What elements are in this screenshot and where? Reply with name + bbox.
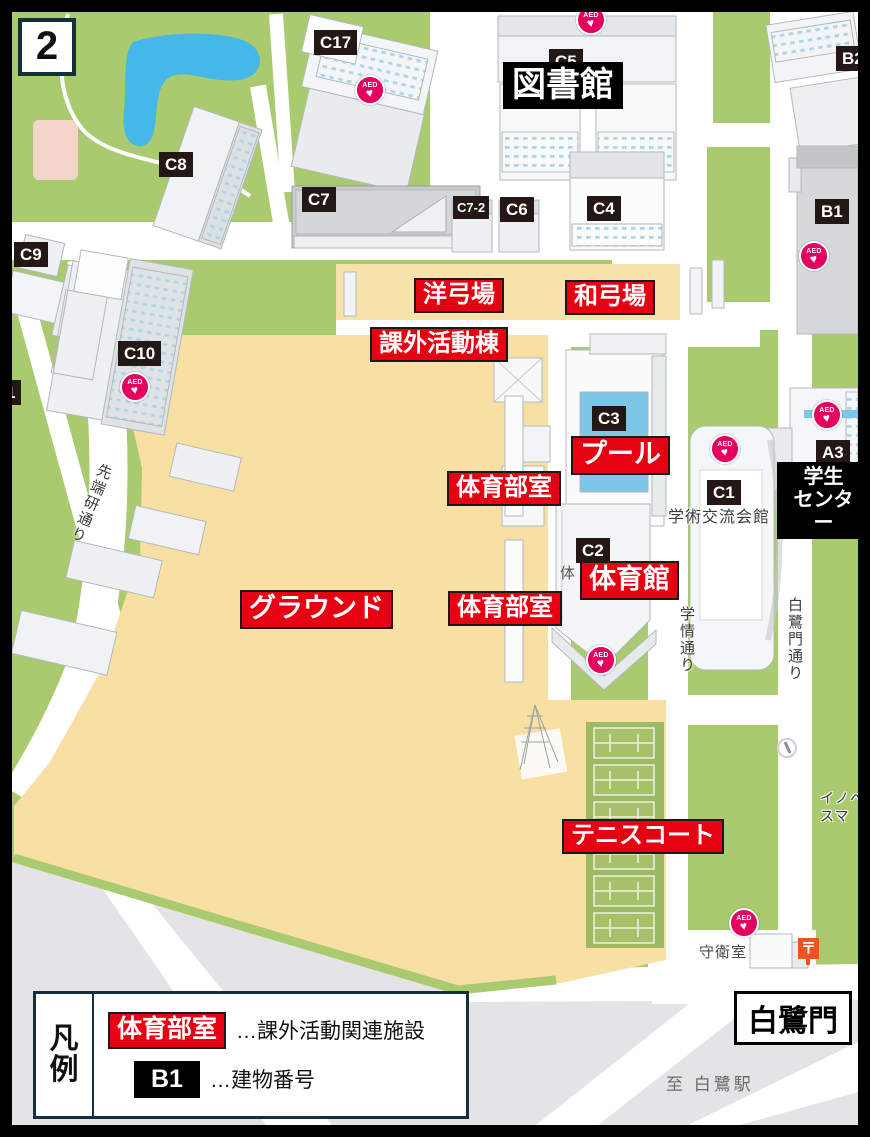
map-text: 守衛室 xyxy=(699,944,747,963)
facility-label: 体育部室 xyxy=(447,471,561,506)
building-number-c8: C8 xyxy=(159,152,193,177)
label-layer: C17C5B2C8C9C7C7-2C6C4B1C101C3C1C2A3洋弓場和弓… xyxy=(0,0,870,1137)
aed-icon: AED♥ xyxy=(812,400,842,430)
aed-icon: AED♥ xyxy=(710,434,740,464)
page-number-badge: 2 xyxy=(18,18,76,76)
building-number-b1: B1 xyxy=(815,199,849,224)
gate-label: 白鷺門 xyxy=(734,991,852,1045)
legend-red-sample: 体育部室 xyxy=(108,1012,226,1049)
building-number-c1: C1 xyxy=(707,480,741,505)
map-text: イノベ スマ xyxy=(820,790,865,825)
legend-row-number: B1 …建物番号 xyxy=(108,1061,466,1098)
building-number-b2: B2 xyxy=(836,46,870,71)
place-label: 図書館 xyxy=(503,62,623,109)
building-number-c4: C4 xyxy=(587,196,621,221)
aed-icon: AED♥ xyxy=(729,908,759,938)
legend: 凡例 体育部室 …課外活動関連施設 B1 …建物番号 xyxy=(33,991,469,1119)
facility-label: 和弓場 xyxy=(565,280,655,315)
road-name: 学情通り xyxy=(676,606,697,674)
building-number-c7-2: C7-2 xyxy=(453,196,489,219)
aed-icon: AED♥ xyxy=(576,5,606,35)
facility-label: 洋弓場 xyxy=(414,278,504,313)
building-number-c3: C3 xyxy=(592,406,626,431)
building-number-c9: C9 xyxy=(14,242,48,267)
building-number-c6: C6 xyxy=(500,197,534,222)
aed-icon: AED♥ xyxy=(799,241,829,271)
aed-icon: AED♥ xyxy=(120,372,150,402)
legend-row-facility: 体育部室 …課外活動関連施設 xyxy=(108,1012,466,1049)
facility-label: グラウンド xyxy=(240,590,393,629)
road-name: 白鷺門通り xyxy=(784,597,805,682)
facility-label: 体育館 xyxy=(580,561,679,600)
legend-title: 凡例 xyxy=(36,994,94,1116)
building-number-c7: C7 xyxy=(302,187,336,212)
map-text: 至 白鷺駅 xyxy=(666,1074,754,1095)
legend-desc-number: …建物番号 xyxy=(210,1064,315,1094)
building-number-1: 1 xyxy=(0,380,21,405)
building-number-c17: C17 xyxy=(314,30,357,55)
facility-label: テニスコート xyxy=(562,819,724,854)
post-office-icon: 〒 xyxy=(798,938,819,959)
aed-icon: AED♥ xyxy=(586,645,616,675)
map-text: 学術交流会館 xyxy=(668,508,770,528)
facility-label: 課外活動棟 xyxy=(370,327,508,362)
building-number-c2: C2 xyxy=(576,538,610,563)
place-label: 学生 センター xyxy=(777,462,870,539)
legend-black-sample: B1 xyxy=(134,1061,200,1098)
road-name: 先端研通り xyxy=(65,460,116,547)
facility-label: 体育部室 xyxy=(448,591,562,626)
map-text: 体 xyxy=(560,565,575,584)
campus-map: C17C5B2C8C9C7C7-2C6C4B1C101C3C1C2A3洋弓場和弓… xyxy=(0,0,870,1137)
aed-icon: AED♥ xyxy=(355,75,385,105)
legend-desc-facility: …課外活動関連施設 xyxy=(236,1015,425,1045)
legend-body: 体育部室 …課外活動関連施設 B1 …建物番号 xyxy=(94,994,466,1116)
building-number-c10: C10 xyxy=(118,341,161,366)
facility-label: プール xyxy=(571,436,670,475)
